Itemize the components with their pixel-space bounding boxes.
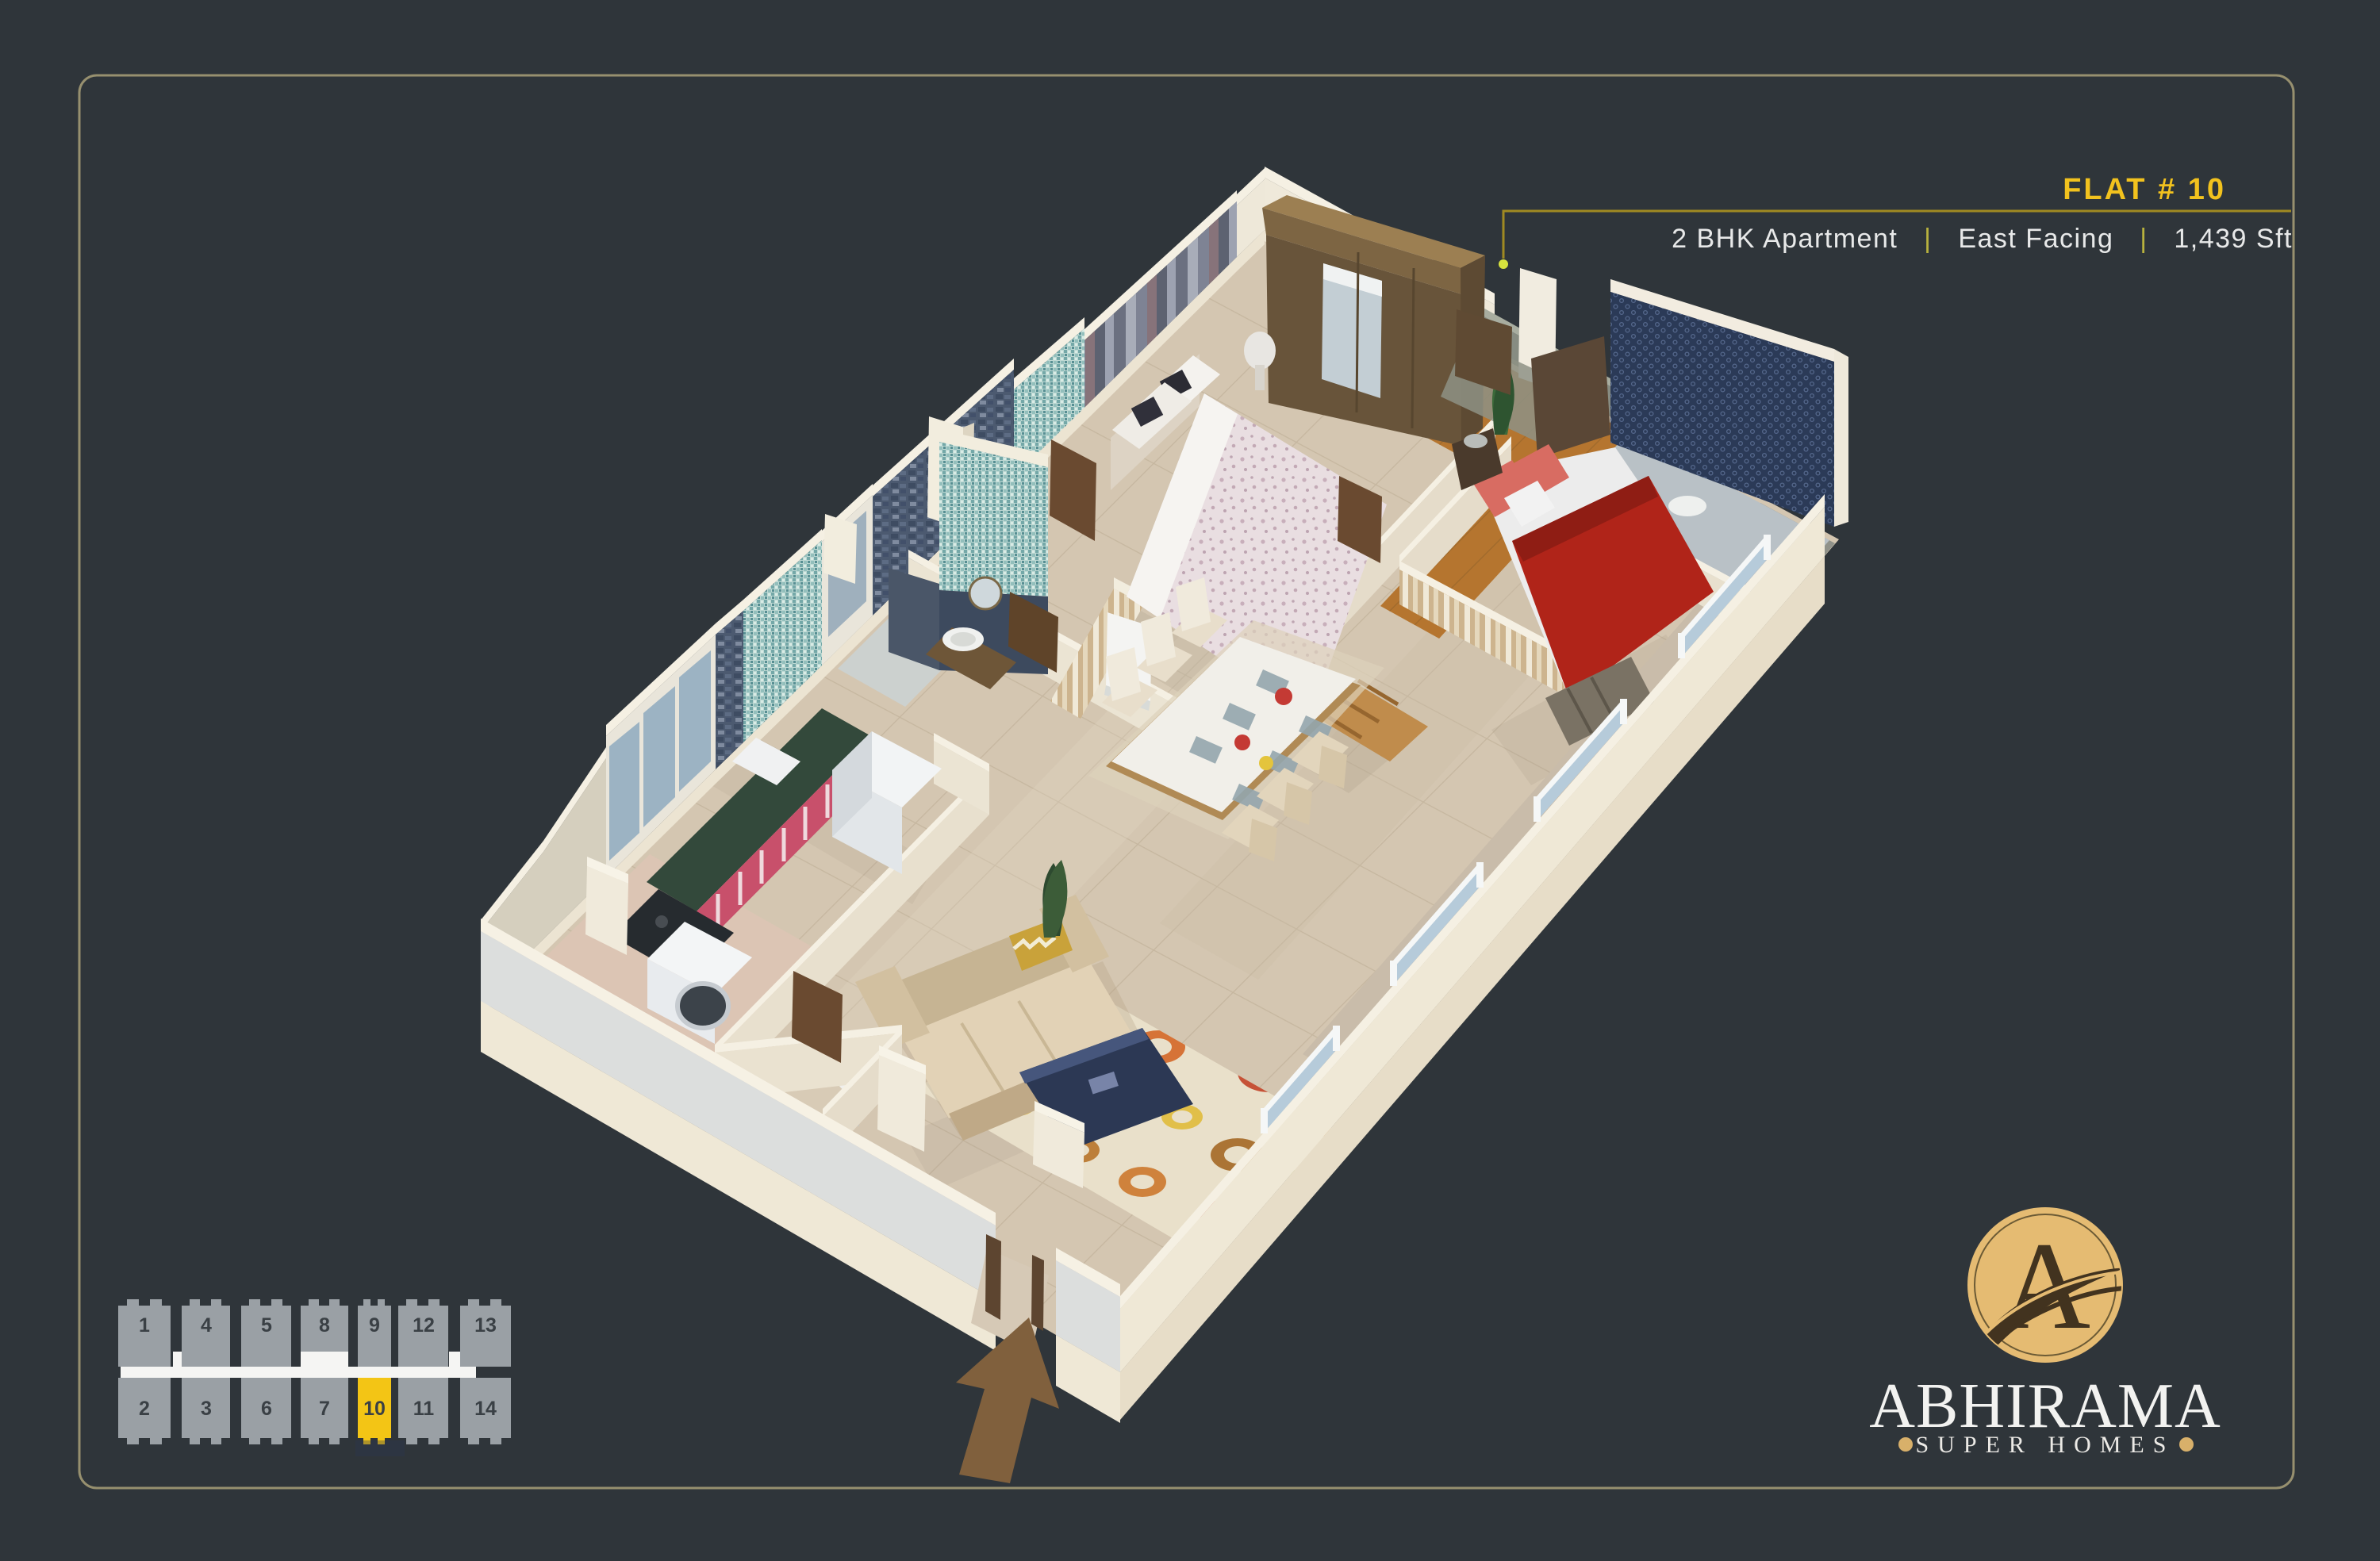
svg-text:10: 10 [363,1398,386,1420]
svg-text:ABHIRAMA: ABHIRAMA [1869,1371,2221,1441]
svg-text:FLAT # 10: FLAT # 10 [2063,173,2226,206]
svg-text:12: 12 [413,1314,435,1337]
svg-text:SUPER HOMES: SUPER HOMES [1916,1432,2175,1458]
svg-text:11: 11 [413,1398,435,1420]
svg-text:6: 6 [261,1398,272,1420]
svg-text:5: 5 [261,1314,272,1337]
svg-text:2 BHK Apartment | East Fac: 2 BHK Apartment | East Facing | 1,439 Sf… [1672,224,2293,254]
svg-text:7: 7 [319,1398,330,1420]
svg-text:9: 9 [369,1314,380,1337]
svg-text:1: 1 [139,1314,150,1337]
svg-text:4: 4 [201,1314,212,1337]
svg-text:8: 8 [319,1314,330,1337]
svg-text:3: 3 [201,1398,212,1420]
svg-text:14: 14 [474,1398,497,1420]
svg-text:13: 13 [474,1314,497,1337]
svg-text:2: 2 [139,1398,150,1420]
